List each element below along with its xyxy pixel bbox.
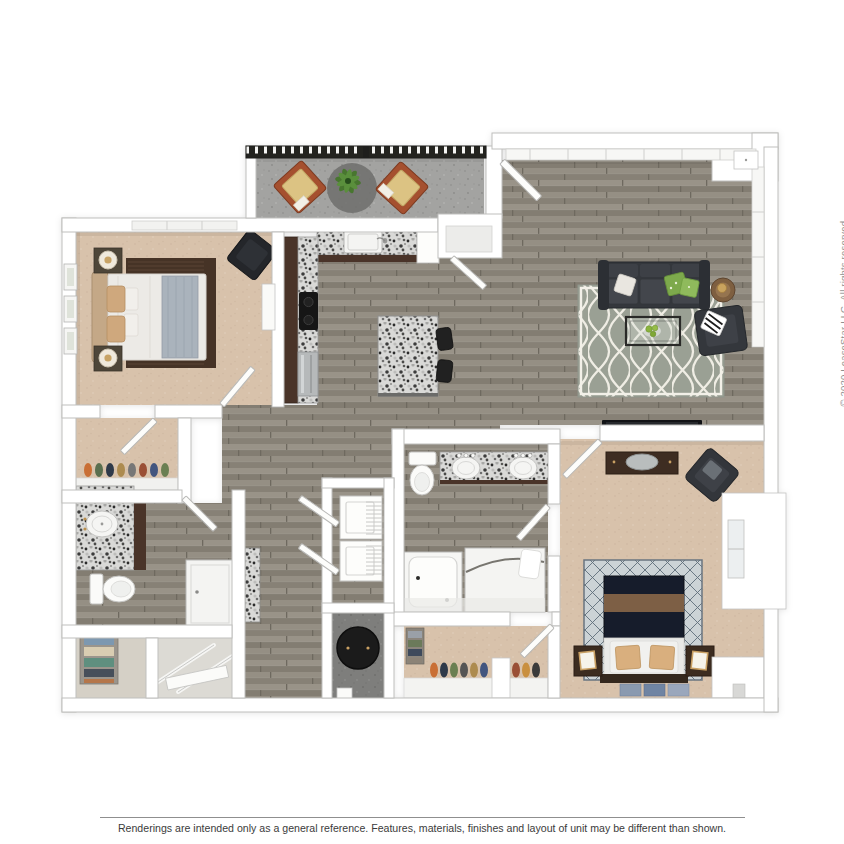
right-window-band [752,167,764,347]
floor-plan-rendering [0,0,844,844]
shower-bath2 [186,560,234,628]
floor-plan-svg [0,0,844,844]
headboard-master [600,674,688,683]
cabinet-front-top [317,255,417,262]
sofa [598,260,710,310]
tan-pillow [615,645,641,670]
disclaimer-rule [100,817,745,818]
closet-divider [492,658,510,698]
toilet-bath2 [90,574,135,604]
tan-pillow [649,645,675,670]
copyright-watermark: © 2020 LeaseStar LLC. All rights reserve… [838,218,844,407]
runner-rugs [620,684,689,696]
utility-door [337,688,352,699]
page: © 2020 LeaseStar LLC. All rights reserve… [0,0,844,844]
accent-chair-living [694,305,748,356]
dryer [340,541,382,581]
room-balcony [273,160,429,215]
nightstand-left [574,646,602,676]
living-window-band [506,149,756,160]
brown-band [604,594,684,612]
shoe-rack [430,663,540,678]
window-seat-ledge [712,657,764,698]
wall-vent [734,151,758,169]
double-vanity [440,452,552,484]
bar-stool [436,359,453,382]
water-heater [337,627,379,669]
tiled-niche [245,548,260,622]
disclaimer-text: Renderings are intended only as a genera… [0,822,844,834]
room-laundry [340,496,382,581]
toilet-master [409,452,436,495]
bedroom2-window [132,221,237,230]
entry-closet-recess [446,226,492,252]
shoe-base [404,678,548,698]
dishwasher [298,352,318,396]
bed-runner [162,276,198,358]
nightstand-top [94,248,122,273]
cooktop [299,292,318,330]
dresser [606,452,678,474]
bedroom2-wall-mirror [262,284,275,330]
nightstand-right [686,646,714,676]
bed-master [600,576,688,683]
shelf-stack [406,628,424,664]
railing-post [363,146,369,158]
nightstand-bottom [94,346,122,371]
coffee-table [626,317,680,345]
kitchen-sink [344,231,387,253]
towel [518,549,542,580]
side-table [711,278,735,302]
tan-pillow [107,286,125,312]
bedroom2-wall-art [64,264,77,354]
oval-mirror [626,454,658,470]
room-hall-closet [80,632,118,684]
tan-pillow [107,316,125,342]
master-window-alcove [722,493,786,609]
bar-stool [436,327,454,351]
